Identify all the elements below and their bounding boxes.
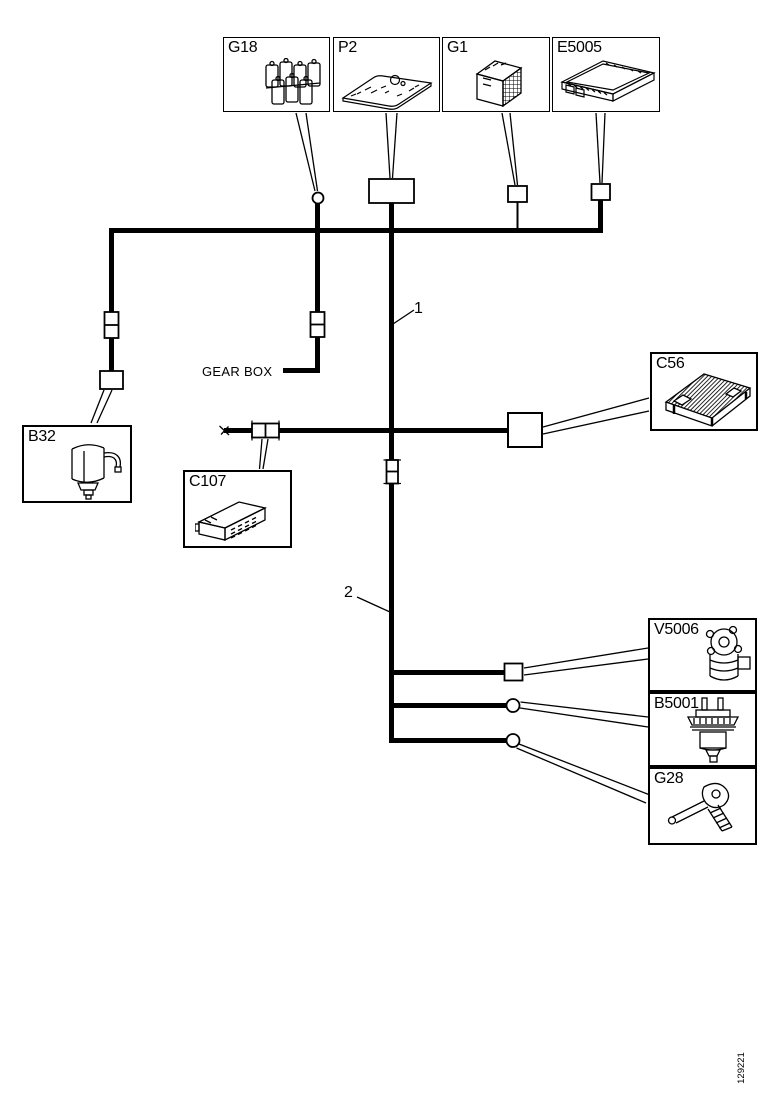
- component-box-c56: C56: [650, 352, 758, 431]
- connector-v5006: [505, 664, 523, 681]
- inline-connector-main-vertical: [384, 460, 402, 484]
- harness-wiring-svg: [0, 0, 762, 1100]
- component-box-g1: G1: [442, 37, 550, 112]
- connector-b5001-ring: [507, 699, 520, 712]
- wire-1-label: 1: [414, 301, 423, 317]
- component-box-v5006: V5006: [648, 618, 757, 692]
- c56-unit-sketch: [662, 366, 754, 430]
- component-label-g18: G18: [228, 38, 257, 57]
- inline-connector-cross-wire: [252, 421, 279, 441]
- component-box-e5005: E5005: [552, 37, 660, 112]
- component-label-c107: C107: [189, 472, 226, 491]
- connector-p2: [369, 179, 414, 203]
- connector-c56-junction: [508, 413, 542, 447]
- connector-g18-ring: [313, 193, 324, 204]
- component-box-b5001: B5001: [648, 692, 757, 767]
- c107-connector-sketch: [195, 496, 283, 546]
- connector-g28-ring: [507, 734, 520, 747]
- component-box-c107: C107: [183, 470, 292, 548]
- component-box-p2: P2: [333, 37, 440, 112]
- figure-number-code: 129221: [736, 1038, 748, 1098]
- wiring-diagram-page: G18 P2 G1: [0, 0, 762, 1100]
- b32-sensor-sketch: [58, 439, 130, 501]
- connectors: [100, 179, 610, 747]
- inline-connector-left-drop: [105, 312, 119, 338]
- connector-b32-junction: [100, 371, 123, 389]
- inline-connector-gearbox-drop: [311, 312, 325, 337]
- connector-e5005: [592, 184, 611, 200]
- component-box-g28: G28: [648, 767, 757, 845]
- harness-wire-2-branches: [389, 673, 507, 741]
- gearbox-annotation: GEAR BOX: [202, 365, 272, 379]
- g28-sensor-sketch: [658, 777, 750, 843]
- e5005-ecu-sketch: [556, 56, 658, 112]
- component-box-b32: B32: [22, 425, 132, 503]
- b5001-sender-sketch: [676, 696, 750, 764]
- component-label-p2: P2: [338, 38, 357, 57]
- component-box-g18: G18: [223, 37, 330, 112]
- g1-unit-sketch: [473, 56, 529, 110]
- leader-lines: [91, 113, 650, 803]
- component-label-g1: G1: [447, 38, 468, 57]
- component-label-e5005: E5005: [557, 38, 602, 57]
- wire-2-label: 2: [344, 585, 353, 601]
- g18-battery-sketch: [264, 58, 326, 110]
- component-label-b32: B32: [28, 427, 56, 446]
- p2-panel-sketch: [337, 66, 437, 110]
- v5006-actuator-sketch: [676, 624, 756, 690]
- connector-g1: [508, 186, 527, 202]
